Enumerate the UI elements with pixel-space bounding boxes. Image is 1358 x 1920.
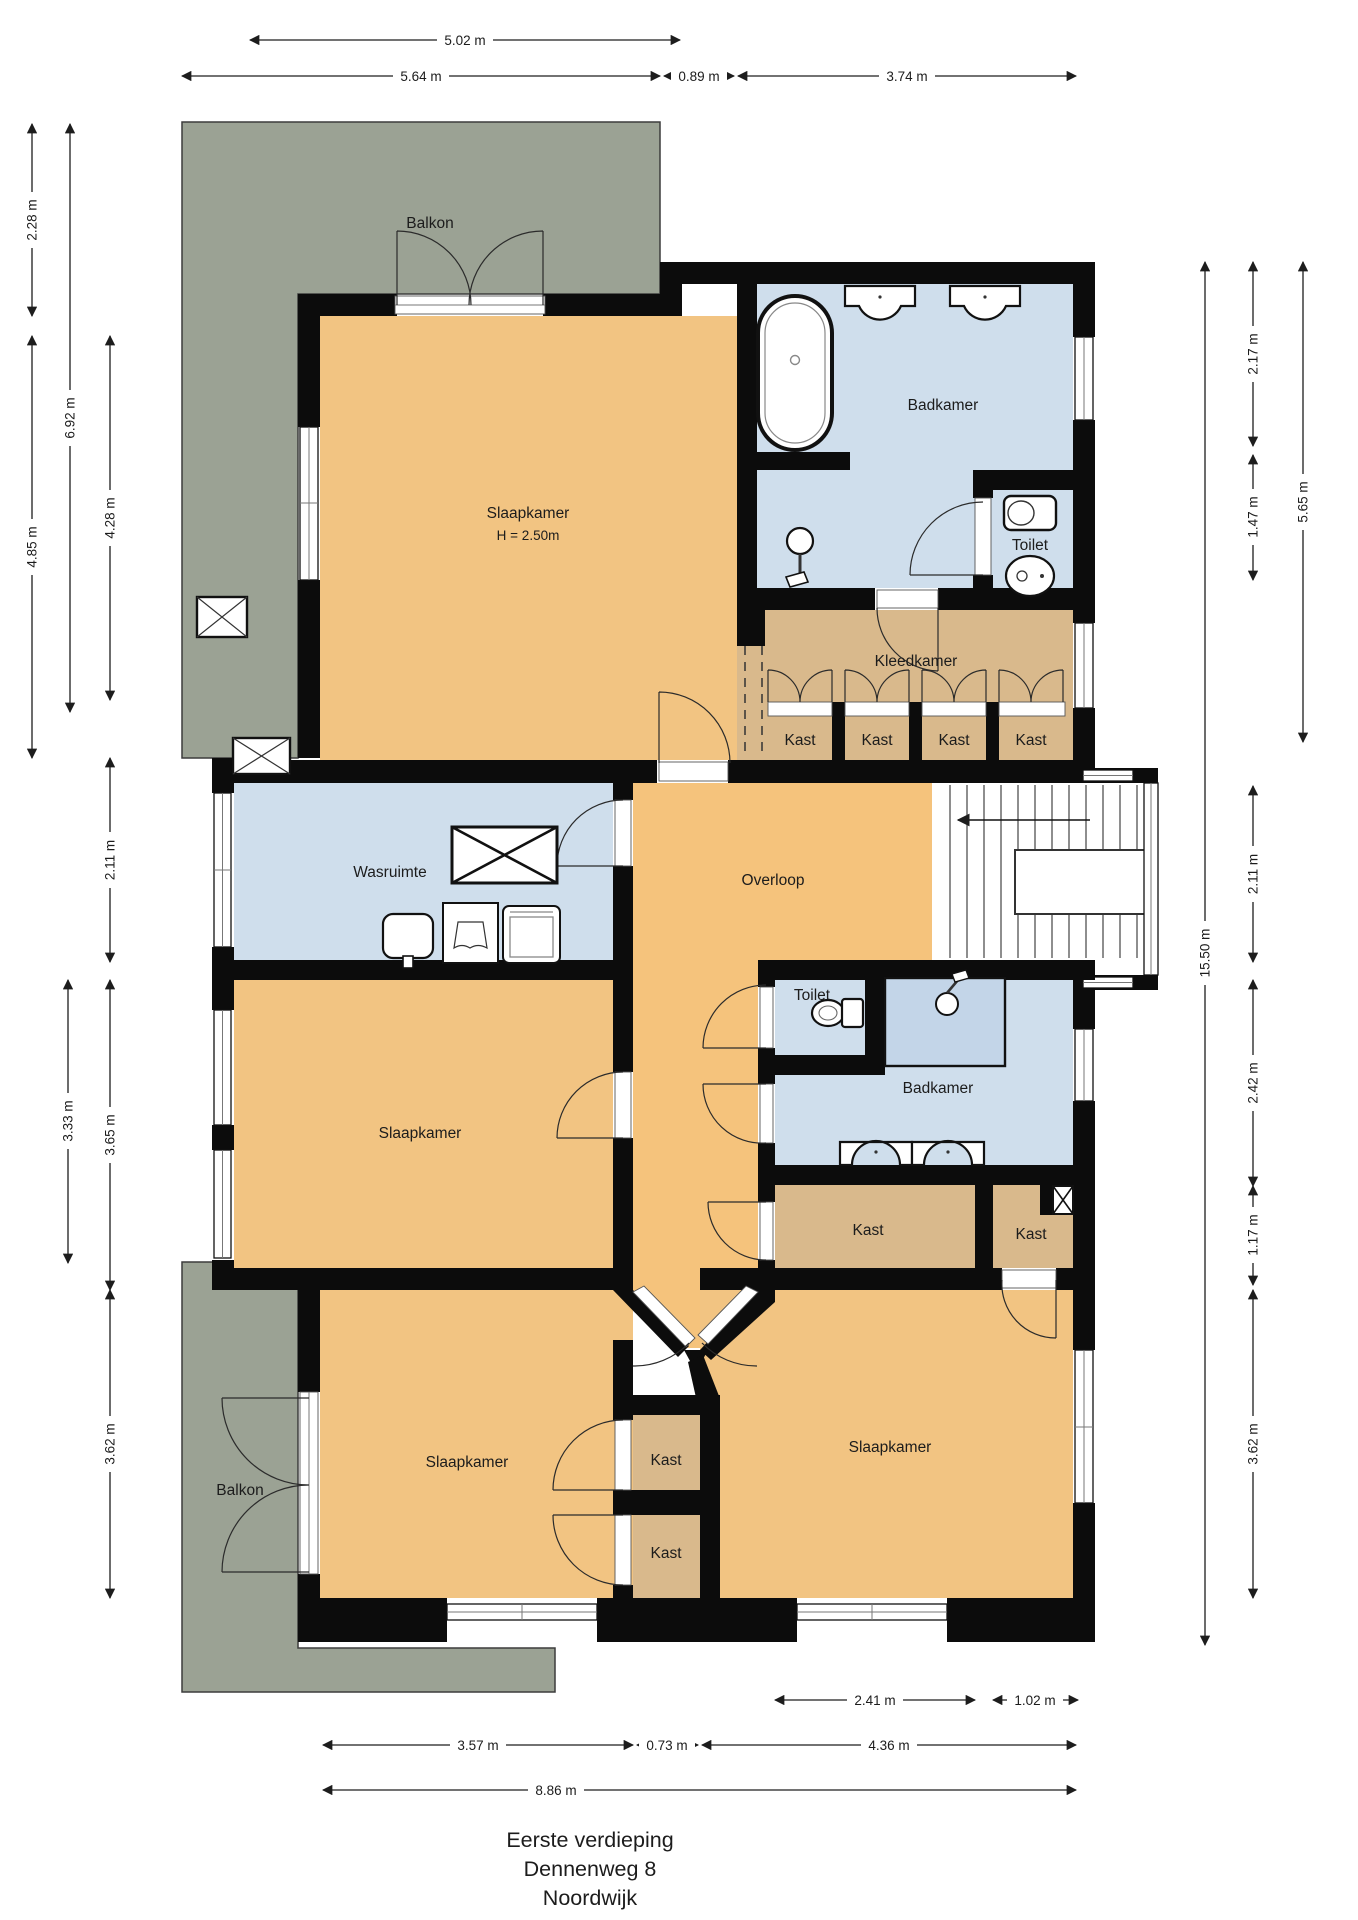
svg-text:15.50 m: 15.50 m — [1198, 929, 1213, 978]
dim-left-2: 6.92 m — [61, 124, 78, 712]
dim-left-7: 3.65 m — [101, 980, 118, 1290]
label-toilet-mid: Toilet — [794, 987, 831, 1004]
svg-text:0.89 m: 0.89 m — [678, 69, 719, 84]
dim-right-6: 2.42 m — [1244, 980, 1261, 1186]
svg-text:2.42 m: 2.42 m — [1246, 1062, 1261, 1103]
label-kast-sw-boven: Kast — [650, 1452, 682, 1469]
svg-text:8.86 m: 8.86 m — [535, 1783, 576, 1798]
dim-bottom-1: 2.41 m — [775, 1692, 975, 1709]
label-slaapkamer-nw-height: H = 2.50m — [497, 528, 560, 543]
dim-bottom-2: 1.02 m — [993, 1692, 1078, 1709]
window-badkamer-mid-right — [1075, 1029, 1093, 1101]
label-wasruimte: Wasruimte — [353, 864, 427, 881]
title-city: Noordwijk — [543, 1886, 638, 1910]
svg-text:4.85 m: 4.85 m — [25, 526, 40, 567]
dim-bottom-4: 0.73 m — [637, 1737, 698, 1754]
dim-right-1: 2.17 m — [1244, 262, 1261, 446]
dim-top-1: 5.02 m — [250, 32, 680, 49]
window-wasruimte-left — [214, 793, 231, 947]
dim-top-3: 0.89 m — [664, 68, 734, 85]
svg-text:3.57 m: 3.57 m — [457, 1738, 498, 1753]
label-kast-a: Kast — [784, 732, 816, 749]
svg-text:6.92 m: 6.92 m — [63, 397, 78, 438]
floor-plan-page: Balkon Slaapkamer H = 2.50m Badkamer Toi… — [0, 0, 1358, 1920]
label-badkamer-top: Badkamer — [908, 397, 979, 414]
dim-left-8: 3.62 m — [101, 1290, 118, 1598]
svg-text:1.17 m: 1.17 m — [1246, 1214, 1261, 1255]
svg-text:2.17 m: 2.17 m — [1246, 333, 1261, 374]
title-floor: Eerste verdieping — [506, 1828, 673, 1852]
toilet-icon-top — [1004, 496, 1056, 530]
label-kast-c: Kast — [938, 732, 970, 749]
svg-text:2.28 m: 2.28 m — [25, 199, 40, 240]
label-slaapkamer-sw: Slaapkamer — [426, 1454, 509, 1471]
label-toilet-top: Toilet — [1012, 537, 1049, 554]
svg-text:2.11 m: 2.11 m — [1246, 854, 1261, 894]
window-slaapkamer-sw-bottom — [447, 1604, 597, 1620]
floor-slaapkamer-sw — [320, 1290, 633, 1598]
svg-text:3.33 m: 3.33 m — [61, 1100, 76, 1141]
washing-machine-icon-2 — [503, 906, 560, 963]
label-kast-sw-onder: Kast — [650, 1545, 682, 1562]
dim-right-3: 1.47 m — [1244, 455, 1261, 580]
label-kast-mid-groot: Kast — [852, 1222, 884, 1239]
title-street: Dennenweg 8 — [524, 1857, 657, 1881]
label-slaapkamer-nw: Slaapkamer — [487, 505, 570, 522]
dim-left-6: 3.33 m — [59, 980, 76, 1263]
label-overloop: Overloop — [742, 872, 805, 889]
shaft-box-icon-nw — [197, 597, 247, 637]
dim-right-7: 1.17 m — [1244, 1186, 1261, 1285]
shower-enclosure-mid — [885, 970, 1005, 1066]
shaft-box-icon-wasruimte — [233, 738, 290, 774]
dim-top-2: 5.64 m — [182, 68, 660, 85]
floor-plan-drawing: Balkon Slaapkamer H = 2.50m Badkamer Toi… — [0, 0, 1358, 1920]
svg-text:0.73 m: 0.73 m — [646, 1738, 687, 1753]
label-balkon-top: Balkon — [406, 215, 453, 232]
dim-bottom-6: 8.86 m — [323, 1782, 1076, 1799]
dim-right-4: 2.11 m — [1244, 786, 1261, 962]
label-balkon-bottom: Balkon — [216, 1482, 263, 1499]
floor-kleedkamer-opening — [737, 642, 765, 760]
stairs-railing — [1015, 850, 1145, 914]
label-kast-mid-klein: Kast — [1015, 1226, 1047, 1243]
window-slaapkamer-nw-left — [300, 427, 318, 580]
svg-text:3.74 m: 3.74 m — [886, 69, 927, 84]
svg-text:4.28 m: 4.28 m — [103, 497, 118, 538]
label-kast-d: Kast — [1015, 732, 1047, 749]
dim-left-4: 4.28 m — [101, 336, 118, 700]
washing-machine-icon-1 — [443, 903, 498, 963]
dim-left-1: 2.28 m — [23, 124, 40, 316]
svg-text:4.36 m: 4.36 m — [868, 1738, 909, 1753]
dim-bottom-3: 3.57 m — [323, 1737, 633, 1754]
floor-slaapkamer-w — [234, 980, 613, 1268]
window-slaapkamer-w-left-1 — [214, 1010, 231, 1125]
window-kleedkamer-right — [1075, 623, 1093, 708]
label-slaapkamer-w: Slaapkamer — [379, 1125, 462, 1142]
ventilation-box-icon — [452, 827, 557, 883]
window-slaapkamer-se-bottom — [797, 1604, 947, 1620]
label-badkamer-mid: Badkamer — [903, 1080, 974, 1097]
shaft-box-icon-mid — [1053, 1186, 1073, 1214]
window-slaapkamer-se-right — [1075, 1350, 1093, 1503]
dim-bottom-5: 4.36 m — [702, 1737, 1076, 1754]
svg-text:3.65 m: 3.65 m — [103, 1114, 118, 1155]
label-kast-b: Kast — [861, 732, 893, 749]
corner-sink-icon-top — [1006, 556, 1054, 596]
svg-text:5.65 m: 5.65 m — [1296, 481, 1311, 522]
window-slaapkamer-w-left-2 — [214, 1150, 231, 1258]
svg-text:1.47 m: 1.47 m — [1246, 496, 1261, 537]
label-kleedkamer: Kleedkamer — [875, 653, 958, 670]
dim-top-4: 3.74 m — [738, 68, 1076, 85]
dim-right-2: 5.65 m — [1294, 262, 1311, 742]
bathtub-icon — [758, 296, 832, 450]
svg-text:3.62 m: 3.62 m — [103, 1423, 118, 1464]
svg-text:5.64 m: 5.64 m — [400, 69, 441, 84]
svg-text:3.62 m: 3.62 m — [1246, 1423, 1261, 1464]
staircase — [932, 768, 1158, 990]
dim-left-3: 4.85 m — [23, 336, 40, 758]
plan-title: Eerste verdieping Dennenweg 8 Noordwijk — [506, 1828, 673, 1910]
svg-text:2.41 m: 2.41 m — [854, 1693, 895, 1708]
window-badkamer-top-right — [1075, 337, 1093, 420]
dim-right-8: 3.62 m — [1244, 1290, 1261, 1598]
label-slaapkamer-se: Slaapkamer — [849, 1439, 932, 1456]
svg-text:1.02 m: 1.02 m — [1014, 1693, 1055, 1708]
dim-left-5: 2.11 m — [101, 758, 118, 962]
svg-text:5.02 m: 5.02 m — [444, 33, 485, 48]
svg-text:2.11 m: 2.11 m — [103, 840, 118, 880]
dim-right-5: 15.50 m — [1196, 262, 1213, 1645]
